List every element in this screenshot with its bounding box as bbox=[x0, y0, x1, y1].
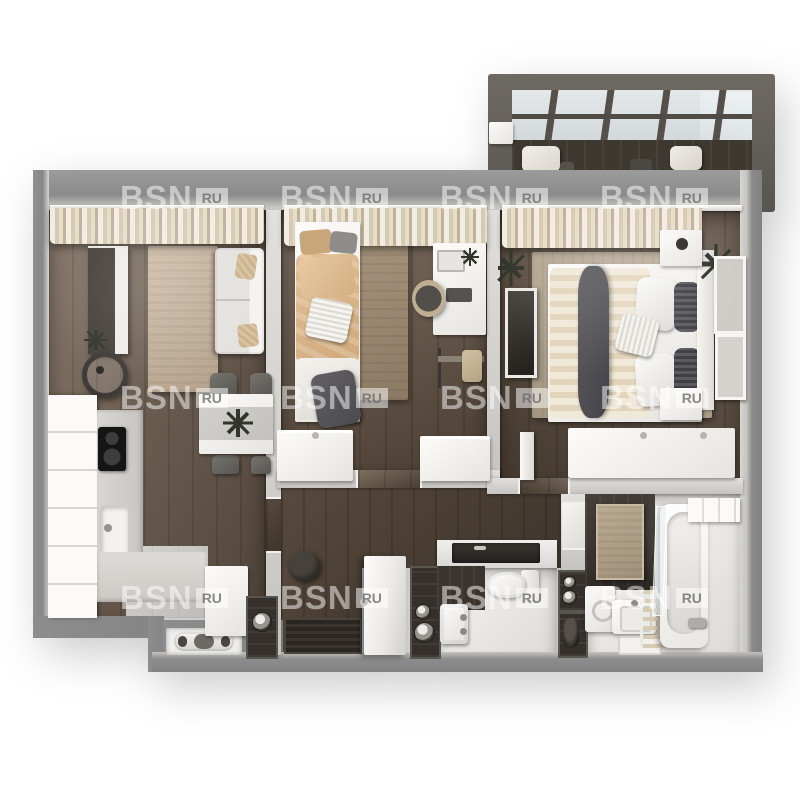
toilet-bowl bbox=[487, 572, 525, 598]
master-door-leaf bbox=[520, 432, 534, 480]
dresser-knob bbox=[640, 432, 647, 439]
bed-throw-dark bbox=[310, 369, 363, 430]
shaft-pipe bbox=[415, 604, 431, 620]
balcony-cushion bbox=[522, 146, 560, 172]
bed-pillow-large bbox=[297, 252, 356, 301]
bottom-wall bbox=[152, 652, 763, 672]
living-room-rug bbox=[148, 246, 218, 392]
sofa-cushion-seam bbox=[216, 299, 250, 301]
wall-art-frame bbox=[714, 256, 746, 334]
bathroom-doorway bbox=[562, 502, 586, 550]
shaft-pipe bbox=[414, 622, 435, 643]
shaft-pipe bbox=[562, 590, 577, 605]
doormat bbox=[284, 618, 362, 654]
bedroom-rug bbox=[358, 240, 408, 400]
dining-chair bbox=[250, 373, 272, 396]
kitchen-sink bbox=[99, 505, 130, 557]
hallway-pouf bbox=[288, 551, 320, 581]
wc-sink-faucet bbox=[460, 614, 467, 621]
dresser-knob bbox=[700, 432, 707, 439]
master-throw-runner bbox=[578, 266, 609, 418]
roof-beam bbox=[512, 114, 752, 119]
balcony-cushion bbox=[670, 146, 702, 170]
bed-pillow-beige bbox=[299, 229, 333, 256]
left-wall bbox=[33, 170, 49, 638]
dining-chair bbox=[212, 455, 239, 474]
pendant-lamp-center bbox=[96, 366, 104, 374]
niche-duct bbox=[563, 618, 579, 648]
dining-chair bbox=[251, 456, 271, 474]
kitchen-peninsula bbox=[205, 566, 248, 636]
radiator-end-cap bbox=[178, 636, 187, 647]
washer-tray bbox=[592, 600, 614, 622]
bathtub-basin bbox=[667, 512, 701, 634]
living-room-curtains bbox=[50, 208, 264, 244]
table-plant bbox=[223, 409, 253, 437]
storage-chest bbox=[420, 436, 490, 481]
bath-mat bbox=[596, 504, 644, 580]
balcony-window-sill bbox=[489, 122, 513, 144]
nightstand bbox=[660, 388, 702, 420]
full-length-mirror bbox=[505, 288, 537, 378]
bed-pillow-gray bbox=[329, 231, 358, 255]
sofa-pillow bbox=[237, 323, 260, 348]
corner-plant bbox=[498, 250, 524, 286]
kitchen-counter-bottom bbox=[97, 552, 207, 602]
wc-sink-faucet bbox=[460, 628, 467, 635]
rack-stool bbox=[462, 350, 482, 382]
top-wall bbox=[33, 170, 745, 210]
cooktop bbox=[98, 427, 126, 471]
shaft-pipe bbox=[563, 576, 576, 589]
wc-vanity-counter bbox=[452, 543, 540, 563]
kitchen-cabinet-column bbox=[48, 395, 97, 618]
door-handle bbox=[360, 598, 368, 606]
floor-plan bbox=[0, 0, 800, 800]
desk-keyboard bbox=[446, 288, 472, 302]
clothes-rack-post bbox=[438, 348, 441, 388]
entry-door-leaf bbox=[364, 556, 406, 655]
master-doorway bbox=[518, 478, 570, 494]
radiator-center bbox=[194, 634, 214, 649]
bathroom-shelf bbox=[688, 498, 740, 522]
shaft-pipe bbox=[252, 612, 272, 632]
apartment-floor-plan-render: BSNRU BSNRU BSNRU BSNRU BSNRU BSNRU BSNR… bbox=[0, 0, 800, 800]
wc-vanity-faucet bbox=[474, 546, 486, 550]
chest-knob bbox=[312, 432, 319, 439]
nightstand-tray bbox=[676, 238, 688, 250]
sink-faucet bbox=[631, 600, 638, 607]
bathtub-faucet bbox=[688, 618, 706, 628]
dresser bbox=[568, 428, 735, 478]
wall-art-frame bbox=[715, 334, 746, 400]
desk-plant bbox=[461, 248, 479, 266]
bottom-wall-kitchen bbox=[33, 616, 163, 638]
sofa-pillow bbox=[234, 253, 257, 281]
radiator-end-cap bbox=[221, 636, 230, 647]
wc-hand-sink bbox=[440, 604, 468, 644]
kitchen-faucet bbox=[104, 524, 112, 532]
right-wall bbox=[740, 170, 762, 672]
dining-chair bbox=[210, 373, 237, 396]
pendant-lamp bbox=[82, 352, 128, 398]
floor-plant bbox=[84, 330, 108, 350]
round-chair bbox=[412, 280, 445, 317]
bedroom-doorway bbox=[356, 470, 422, 488]
bed-pillow-white-striped bbox=[304, 296, 353, 344]
living-room-doorway bbox=[266, 497, 281, 553]
